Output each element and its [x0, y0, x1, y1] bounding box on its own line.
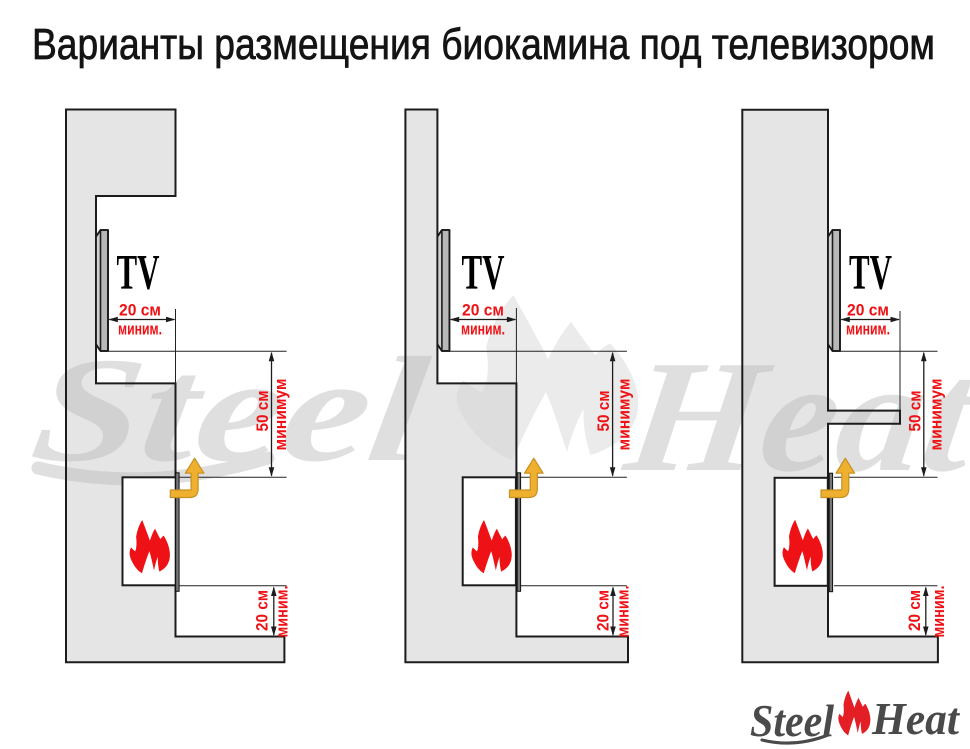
- svg-text:20 см: 20 см: [253, 590, 272, 631]
- svg-text:50 см: 50 см: [594, 391, 613, 432]
- svg-text:20 см: 20 см: [462, 301, 504, 320]
- svg-text:Heat: Heat: [871, 693, 960, 744]
- svg-text:Варианты размещения биокамина: Варианты размещения биокамина под телеви…: [32, 20, 935, 69]
- svg-text:миним.: миним.: [846, 320, 890, 339]
- svg-text:миним.: миним.: [118, 320, 162, 339]
- svg-text:20 см: 20 см: [119, 301, 161, 320]
- svg-text:минимум: минимум: [271, 379, 290, 451]
- svg-text:миним.: миним.: [614, 586, 633, 638]
- svg-text:TV: TV: [462, 244, 505, 300]
- svg-text:20 см: 20 см: [594, 590, 613, 631]
- svg-text:TV: TV: [849, 244, 892, 300]
- svg-text:50 см: 50 см: [253, 391, 272, 432]
- svg-text:миним.: миним.: [461, 320, 505, 339]
- svg-text:20 см: 20 см: [847, 301, 889, 320]
- svg-text:20 см: 20 см: [905, 590, 924, 631]
- svg-text:50 см: 50 см: [906, 391, 925, 432]
- svg-text:миним.: миним.: [929, 586, 948, 638]
- svg-text:минимум: минимум: [927, 379, 946, 451]
- svg-text:минимум: минимум: [615, 379, 634, 451]
- svg-text:миним.: миним.: [273, 586, 292, 638]
- svg-text:TV: TV: [117, 244, 160, 300]
